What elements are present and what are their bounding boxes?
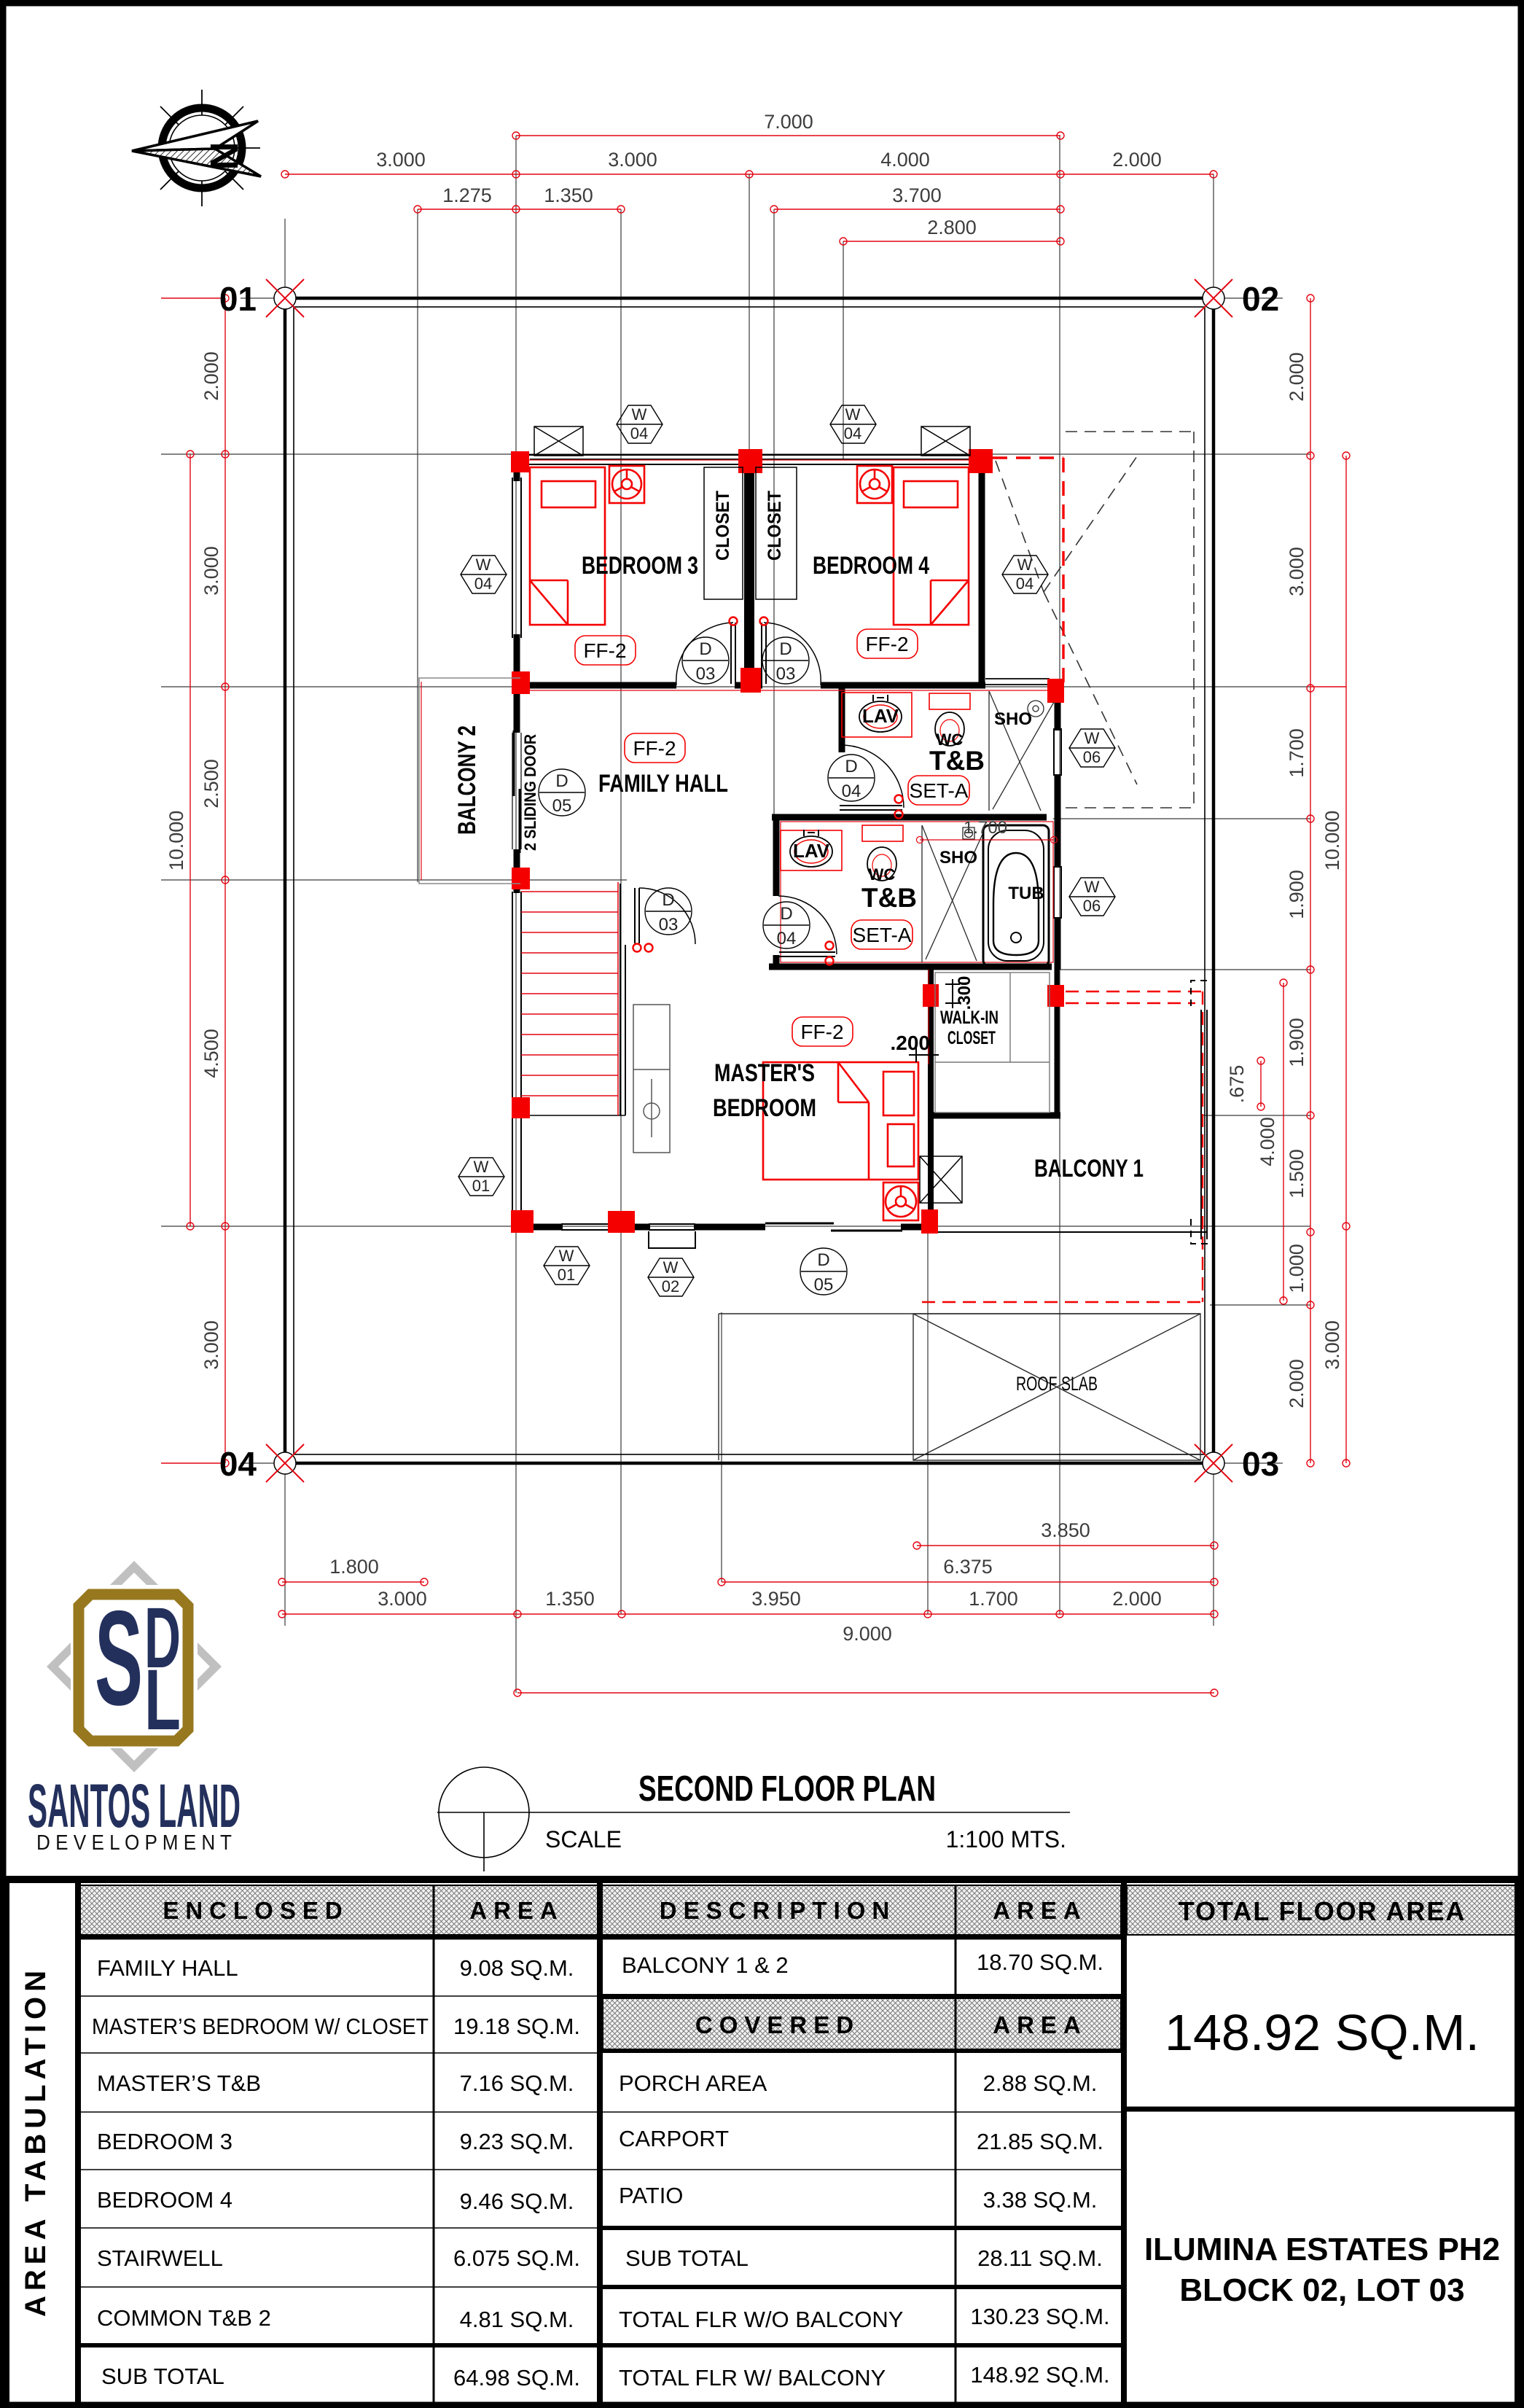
- svg-text:6.375: 6.375: [943, 1556, 993, 1578]
- svg-text:10.000: 10.000: [1321, 811, 1343, 871]
- svg-text:01: 01: [472, 1177, 490, 1195]
- svg-text:S: S: [95, 1583, 143, 1734]
- svg-text:2.000: 2.000: [1112, 149, 1162, 171]
- svg-text:.675: .675: [1226, 1065, 1248, 1104]
- svg-text:COVERED: COVERED: [695, 2011, 860, 2038]
- svg-text:04: 04: [844, 424, 861, 443]
- svg-text:4.500: 4.500: [200, 1029, 222, 1078]
- svg-text:CARPORT: CARPORT: [619, 2126, 729, 2151]
- svg-text:1.275: 1.275: [442, 184, 492, 206]
- svg-text:05: 05: [552, 796, 572, 816]
- svg-text:W: W: [559, 1247, 574, 1265]
- svg-text:04: 04: [842, 782, 861, 801]
- svg-text:SECOND FLOOR PLAN: SECOND FLOOR PLAN: [638, 1769, 936, 1809]
- svg-text:.200: .200: [891, 1032, 931, 1054]
- svg-text:1.000: 1.000: [1286, 1244, 1308, 1293]
- svg-text:AREA: AREA: [993, 1897, 1087, 1924]
- svg-text:03: 03: [696, 664, 716, 684]
- svg-text:BEDROOM: BEDROOM: [713, 1094, 816, 1122]
- svg-text:9.08 SQ.M.: 9.08 SQ.M.: [460, 1955, 574, 1981]
- svg-text:01: 01: [558, 1266, 575, 1284]
- svg-text:3.000: 3.000: [1321, 1320, 1343, 1370]
- svg-text:SET-A: SET-A: [910, 779, 969, 802]
- svg-text:STAIRWELL: STAIRWELL: [97, 2245, 223, 2271]
- svg-text:1.700: 1.700: [1286, 728, 1308, 778]
- svg-text:TOTAL FLR W/ BALCONY: TOTAL FLR W/ BALCONY: [619, 2365, 886, 2391]
- svg-text:18.70 SQ.M.: 18.70 SQ.M.: [977, 1949, 1103, 1975]
- svg-text:148.92 SQ.M.: 148.92 SQ.M.: [1165, 2004, 1480, 2061]
- svg-text:1.500: 1.500: [1286, 1149, 1308, 1199]
- svg-text:3.000: 3.000: [376, 149, 426, 171]
- svg-text:04: 04: [630, 424, 648, 443]
- svg-text:MASTER’S BEDROOM W/ CLOSET: MASTER’S BEDROOM W/ CLOSET: [92, 2014, 429, 2039]
- svg-text:BEDROOM 4: BEDROOM 4: [813, 552, 929, 580]
- svg-text:1.350: 1.350: [545, 1588, 595, 1610]
- svg-text:MASTER’S T&B: MASTER’S T&B: [97, 2070, 261, 2096]
- svg-text:ILUMINA ESTATES PH2: ILUMINA ESTATES PH2: [1144, 2232, 1500, 2267]
- svg-text:D: D: [699, 639, 711, 659]
- svg-text:1.350: 1.350: [544, 184, 593, 206]
- svg-text:SCALE: SCALE: [545, 1826, 622, 1852]
- svg-text:PATIO: PATIO: [619, 2183, 683, 2208]
- svg-text:WC: WC: [869, 865, 896, 884]
- svg-text:AREA: AREA: [469, 1897, 564, 1924]
- svg-text:02: 02: [1242, 280, 1279, 318]
- svg-text:CLOSET: CLOSET: [765, 491, 785, 561]
- svg-text:N: N: [203, 142, 246, 171]
- svg-text:2 SLIDING DOOR: 2 SLIDING DOOR: [521, 734, 539, 851]
- svg-text:COMMON T&B 2: COMMON T&B 2: [97, 2305, 271, 2331]
- svg-text:1.800: 1.800: [329, 1556, 379, 1578]
- svg-text:SHO: SHO: [994, 709, 1032, 729]
- svg-text:MASTER'S: MASTER'S: [714, 1059, 815, 1087]
- svg-text:06: 06: [1083, 897, 1101, 915]
- svg-text:LAV: LAV: [793, 840, 830, 862]
- svg-text:ROOF SLAB: ROOF SLAB: [1016, 1373, 1098, 1395]
- svg-text:3.38 SQ.M.: 3.38 SQ.M.: [983, 2187, 1098, 2213]
- svg-text:2.000: 2.000: [200, 351, 222, 401]
- svg-text:T&B: T&B: [929, 746, 985, 776]
- svg-text:2.800: 2.800: [927, 217, 977, 238]
- svg-text:W: W: [476, 556, 491, 574]
- svg-text:4.000: 4.000: [1257, 1117, 1278, 1166]
- svg-text:7.16 SQ.M.: 7.16 SQ.M.: [460, 2070, 574, 2096]
- svg-text:05: 05: [814, 1275, 834, 1295]
- svg-text:W: W: [845, 405, 861, 424]
- svg-text:4.81 SQ.M.: 4.81 SQ.M.: [460, 2307, 574, 2332]
- svg-text:19.18 SQ.M.: 19.18 SQ.M.: [453, 2014, 580, 2039]
- svg-text:D: D: [779, 639, 792, 659]
- svg-text:3.700: 3.700: [892, 184, 942, 206]
- svg-text:D: D: [845, 757, 857, 776]
- svg-text:CLOSET: CLOSET: [713, 491, 733, 561]
- svg-text:9.23 SQ.M.: 9.23 SQ.M.: [460, 2129, 574, 2154]
- svg-text:04: 04: [219, 1445, 257, 1483]
- svg-text:04: 04: [1016, 574, 1033, 593]
- svg-text:9.46 SQ.M.: 9.46 SQ.M.: [460, 2189, 574, 2214]
- svg-text:3.000: 3.000: [200, 546, 222, 596]
- svg-text:06: 06: [1083, 748, 1101, 766]
- svg-text:D E V E L O P M E N T: D E V E L O P M E N T: [36, 1831, 232, 1855]
- svg-text:SHO: SHO: [939, 848, 977, 868]
- svg-text:148.92 SQ.M.: 148.92 SQ.M.: [970, 2362, 1109, 2388]
- svg-text:1.900: 1.900: [1286, 1018, 1308, 1067]
- svg-text:3.000: 3.000: [1286, 547, 1308, 596]
- svg-text:04: 04: [777, 929, 797, 948]
- svg-text:D: D: [817, 1250, 829, 1270]
- svg-text:03: 03: [1242, 1445, 1279, 1483]
- svg-text:1:100 MTS.: 1:100 MTS.: [946, 1826, 1066, 1852]
- svg-text:2.000: 2.000: [1286, 352, 1308, 402]
- svg-text:BEDROOM 4: BEDROOM 4: [97, 2187, 232, 2213]
- svg-text:WC: WC: [937, 730, 964, 749]
- svg-text:02: 02: [662, 1277, 679, 1295]
- svg-text:1.900: 1.900: [1286, 870, 1308, 919]
- svg-text:BEDROOM 3: BEDROOM 3: [97, 2129, 232, 2154]
- svg-text:2.500: 2.500: [200, 759, 222, 808]
- svg-text:FF-2: FF-2: [633, 737, 676, 760]
- svg-text:BALCONY 2: BALCONY 2: [453, 725, 481, 835]
- svg-text:BEDROOM 3: BEDROOM 3: [582, 552, 698, 580]
- svg-text:L: L: [144, 1652, 181, 1748]
- svg-text:1.700: 1.700: [969, 1588, 1018, 1610]
- svg-text:DESCRIPTION: DESCRIPTION: [660, 1897, 896, 1924]
- svg-text:BLOCK 02, LOT 03: BLOCK 02, LOT 03: [1179, 2272, 1464, 2308]
- svg-text:6.075 SQ.M.: 6.075 SQ.M.: [453, 2245, 580, 2271]
- svg-text:TUB: TUB: [1008, 884, 1044, 903]
- svg-text:64.98 SQ.M.: 64.98 SQ.M.: [453, 2365, 580, 2391]
- svg-text:21.85 SQ.M.: 21.85 SQ.M.: [977, 2129, 1103, 2154]
- svg-text:LAV: LAV: [862, 705, 899, 727]
- svg-text:PORCH AREA: PORCH AREA: [619, 2070, 767, 2096]
- svg-text:ENCLOSED: ENCLOSED: [163, 1897, 348, 1924]
- svg-text:D: D: [662, 890, 674, 910]
- svg-text:FAMILY HALL: FAMILY HALL: [97, 1955, 238, 1981]
- svg-text:SUB TOTAL: SUB TOTAL: [101, 2364, 224, 2389]
- svg-text:W: W: [1085, 878, 1100, 896]
- svg-text:BALCONY 1: BALCONY 1: [1034, 1155, 1144, 1182]
- svg-text:10.000: 10.000: [165, 811, 187, 871]
- svg-text:T&B: T&B: [861, 883, 917, 913]
- svg-text:3.000: 3.000: [200, 1320, 222, 1370]
- svg-text:3.000: 3.000: [378, 1588, 427, 1610]
- svg-text:1.700: 1.700: [964, 818, 1007, 838]
- svg-text:AREA TABULATION: AREA TABULATION: [20, 1965, 52, 2317]
- svg-text:W: W: [632, 405, 647, 424]
- svg-text:04: 04: [474, 574, 492, 593]
- svg-text:D: D: [555, 771, 568, 791]
- svg-text:FF-2: FF-2: [583, 639, 626, 662]
- svg-text:7.000: 7.000: [764, 111, 813, 133]
- svg-text:W: W: [663, 1258, 679, 1277]
- svg-text:W: W: [474, 1158, 489, 1176]
- svg-text:130.23 SQ.M.: 130.23 SQ.M.: [970, 2304, 1109, 2329]
- svg-text:4.000: 4.000: [880, 149, 930, 171]
- svg-text:03: 03: [776, 664, 796, 684]
- svg-text:FF-2: FF-2: [800, 1021, 843, 1043]
- svg-text:03: 03: [659, 915, 679, 935]
- svg-text:9.000: 9.000: [843, 1623, 892, 1645]
- svg-text:28.11 SQ.M.: 28.11 SQ.M.: [977, 2245, 1103, 2271]
- svg-text:SUB TOTAL: SUB TOTAL: [625, 2245, 749, 2271]
- svg-text:FAMILY HALL: FAMILY HALL: [598, 770, 728, 798]
- svg-text:D: D: [780, 904, 792, 924]
- svg-text:TOTAL FLR W/O BALCONY: TOTAL FLR W/O BALCONY: [619, 2307, 903, 2332]
- svg-text:CLOSET: CLOSET: [947, 1028, 996, 1048]
- svg-text:W: W: [1085, 729, 1100, 747]
- svg-text:BALCONY 1 & 2: BALCONY 1 & 2: [622, 1952, 789, 1978]
- svg-text:AREA: AREA: [993, 2011, 1087, 2038]
- svg-text:TOTAL FLOOR AREA: TOTAL FLOOR AREA: [1179, 1896, 1466, 1926]
- svg-text:3.850: 3.850: [1041, 1519, 1090, 1541]
- svg-text:SANTOS LAND: SANTOS LAND: [28, 1772, 241, 1840]
- svg-text:2.000: 2.000: [1112, 1588, 1162, 1610]
- svg-text:3.000: 3.000: [608, 149, 657, 171]
- svg-text:W: W: [1017, 556, 1033, 574]
- svg-text:01: 01: [219, 280, 257, 318]
- svg-text:3.950: 3.950: [751, 1588, 801, 1610]
- svg-text:SET-A: SET-A: [853, 924, 912, 946]
- svg-text:.300: .300: [955, 976, 974, 1010]
- svg-text:2.000: 2.000: [1286, 1359, 1308, 1408]
- svg-text:FF-2: FF-2: [865, 633, 908, 655]
- svg-text:2.88 SQ.M.: 2.88 SQ.M.: [983, 2070, 1098, 2096]
